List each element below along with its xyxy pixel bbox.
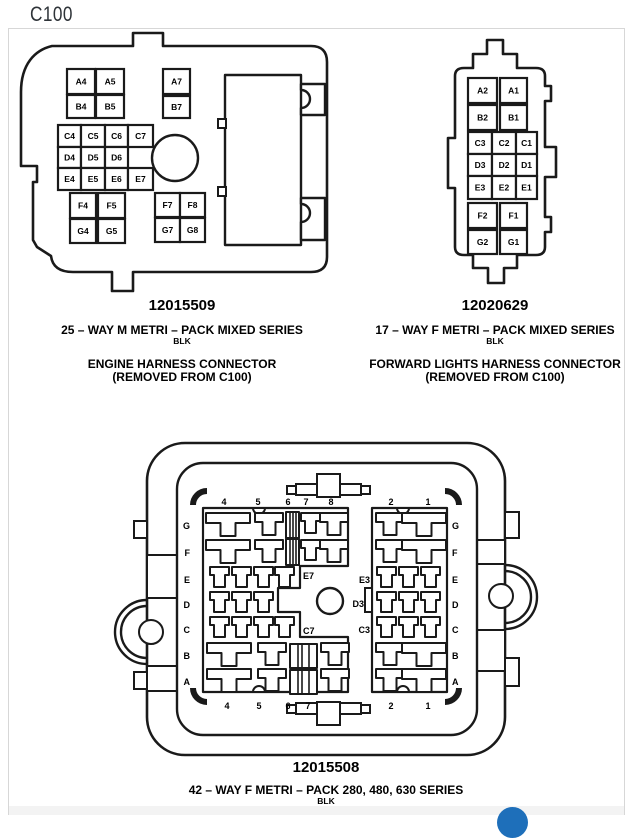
connector1-key-cavity bbox=[225, 75, 301, 245]
pin-label: E3 bbox=[475, 183, 486, 193]
pin-label: C7 bbox=[135, 131, 146, 141]
connector1-part-number: 12015509 bbox=[22, 298, 342, 313]
pin-label: G5 bbox=[106, 226, 118, 236]
pin-label: F8 bbox=[188, 200, 198, 210]
connector1-color-code: BLK bbox=[22, 337, 342, 346]
right-latch-rail-lower bbox=[477, 630, 505, 671]
left-side-tab-upper bbox=[134, 521, 147, 538]
grid-label-E3: E3 bbox=[359, 575, 370, 585]
grid-label-6: 6 bbox=[285, 701, 290, 711]
connector2-drawing: A2A1B2B1C3C2C1D3D2D1E3E2E1F2F1G2G1 bbox=[448, 40, 556, 283]
grid-label-D: D bbox=[184, 600, 191, 610]
pin-label: F1 bbox=[509, 211, 519, 221]
d3-index-tab bbox=[365, 588, 372, 612]
grid-label-D: D bbox=[452, 600, 459, 610]
grid-label-E: E bbox=[452, 575, 458, 585]
pin-label: B4 bbox=[76, 102, 87, 112]
grid-label-E7: E7 bbox=[303, 571, 314, 581]
grid-label-4: 4 bbox=[224, 701, 229, 711]
connector2-description: FORWARD LIGHTS HARNESS CONNECTOR (REMOVE… bbox=[360, 358, 630, 384]
pin-label: F7 bbox=[163, 200, 173, 210]
grid-label-B: B bbox=[184, 651, 191, 661]
pin-label: C3 bbox=[475, 138, 486, 148]
pin-label: E7 bbox=[135, 174, 146, 184]
grid-label-C: C bbox=[452, 625, 459, 635]
grid-label-A: A bbox=[452, 677, 459, 687]
blank-plug bbox=[290, 670, 317, 694]
pin-label: E4 bbox=[64, 174, 75, 184]
pin-label: C5 bbox=[88, 131, 99, 141]
connector1-drawing: A4A5A7B4B5B7C4C5C6C7D4D5D6E4E5E6E7F4F5F7… bbox=[21, 33, 327, 291]
grid-label-F: F bbox=[185, 548, 191, 558]
pin-label: D2 bbox=[499, 160, 510, 170]
connector2-caption: 12020629 17 – WAY F METRI – PACK MIXED S… bbox=[360, 298, 630, 384]
grid-label-8: 8 bbox=[328, 497, 333, 507]
pin-label: C2 bbox=[499, 138, 510, 148]
pin-label: E6 bbox=[111, 174, 122, 184]
connector2-description-line2: (REMOVED FROM C100) bbox=[360, 371, 630, 384]
pin-label: G1 bbox=[508, 237, 520, 247]
pin-label: D6 bbox=[111, 153, 122, 163]
connector3-caption: 12015508 42 – WAY F METRI – PACK 280, 48… bbox=[176, 760, 476, 806]
pin-label: A7 bbox=[171, 77, 182, 87]
connector1-description: ENGINE HARNESS CONNECTOR (REMOVED FROM C… bbox=[22, 358, 342, 384]
grid-label-1: 1 bbox=[425, 701, 430, 711]
grid-label-2: 2 bbox=[388, 701, 393, 711]
pin-label: D1 bbox=[521, 160, 532, 170]
grid-label-C: C bbox=[184, 625, 191, 635]
grid-label-B: B bbox=[452, 651, 459, 661]
page: { "page": { "title": "C100" }, "connecto… bbox=[0, 0, 633, 815]
pin-label: C4 bbox=[64, 131, 75, 141]
right-block-bottom-notch bbox=[397, 686, 409, 692]
pin-label: C1 bbox=[521, 138, 532, 148]
left-side-tab-lower bbox=[134, 672, 147, 689]
connector1-round-cavity bbox=[152, 135, 198, 181]
pin-label: B2 bbox=[477, 113, 488, 123]
grid-label-7: 7 bbox=[303, 497, 308, 507]
pin-label: A5 bbox=[105, 77, 116, 87]
grid-label-G: G bbox=[452, 521, 459, 531]
connector2-color-code: BLK bbox=[360, 337, 630, 346]
pin-label: A4 bbox=[76, 77, 87, 87]
pin-label: F2 bbox=[478, 211, 488, 221]
connector3-color-code: BLK bbox=[176, 797, 476, 806]
left-latch-rail-upper bbox=[147, 555, 177, 598]
pin-label: D4 bbox=[64, 153, 75, 163]
grid-label-C7: C7 bbox=[303, 626, 315, 636]
connector3-part-number: 12015508 bbox=[176, 760, 476, 775]
grid-label-D3: D3 bbox=[352, 599, 364, 609]
pin-label: C6 bbox=[111, 131, 122, 141]
pin-label: B1 bbox=[508, 113, 519, 123]
connector3-drawing: GFEDCBAGFEDCBA4567821456721E7C7E3D3C3 bbox=[115, 443, 537, 755]
chat-bubble-button[interactable] bbox=[497, 807, 528, 838]
grid-label-5: 5 bbox=[256, 701, 261, 711]
blank-plug bbox=[290, 644, 317, 668]
cavity-jog-top bbox=[218, 119, 226, 128]
connector-diagram: A4A5A7B4B5B7C4C5C6C7D4D5D6E4E5E6E7F4F5F7… bbox=[0, 0, 633, 815]
pin-label: B7 bbox=[171, 102, 182, 112]
connector3-round-cavity bbox=[317, 588, 343, 614]
pin-label: D3 bbox=[475, 160, 486, 170]
grid-label-C3: C3 bbox=[358, 625, 370, 635]
right-side-tab-lower bbox=[505, 658, 519, 686]
connector1-description-line2: (REMOVED FROM C100) bbox=[22, 371, 342, 384]
grid-label-1: 1 bbox=[425, 497, 430, 507]
right-side-tab-upper bbox=[505, 512, 519, 538]
pin-label: D5 bbox=[88, 153, 99, 163]
right-latch-rail-upper bbox=[477, 540, 505, 564]
grid-label-6: 6 bbox=[285, 497, 290, 507]
cavity-jog-bottom bbox=[218, 187, 226, 196]
connector2-pins: A2A1B2B1C3C2C1D3D2D1E3E2E1F2F1G2G1 bbox=[468, 78, 537, 254]
connector1-series: 25 – WAY M METRI – PACK MIXED SERIES bbox=[22, 324, 342, 336]
grid-label-A: A bbox=[184, 677, 191, 687]
pin-label: E1 bbox=[521, 183, 532, 193]
grid-label-G: G bbox=[183, 521, 190, 531]
pin-label: E2 bbox=[499, 183, 510, 193]
left-latch-rail-lower bbox=[147, 666, 177, 691]
left-ear-hole bbox=[139, 620, 163, 644]
grid-label-5: 5 bbox=[255, 497, 260, 507]
connector2-series: 17 – WAY F METRI – PACK MIXED SERIES bbox=[360, 324, 630, 336]
pin-label: G2 bbox=[477, 237, 489, 247]
connector3-series: 42 – WAY F METRI – PACK 280, 480, 630 SE… bbox=[176, 784, 476, 796]
pin-label: A1 bbox=[508, 86, 519, 96]
right-ear-hole bbox=[489, 584, 513, 608]
left-block-bottom-notch bbox=[253, 686, 265, 692]
pin-label: F5 bbox=[107, 201, 117, 211]
pin-label: A2 bbox=[477, 86, 488, 96]
pin-label: F4 bbox=[78, 201, 88, 211]
pin-label: B5 bbox=[105, 102, 116, 112]
grid-label-E: E bbox=[184, 575, 190, 585]
grid-label-2: 2 bbox=[388, 497, 393, 507]
grid-label-4: 4 bbox=[221, 497, 226, 507]
pin-label: E5 bbox=[88, 174, 99, 184]
pin-label: G8 bbox=[187, 225, 199, 235]
connector2-part-number: 12020629 bbox=[360, 298, 630, 313]
grid-label-F: F bbox=[452, 548, 458, 558]
pin-label: G7 bbox=[162, 225, 174, 235]
grid-label-7: 7 bbox=[305, 701, 310, 711]
connector1-caption: 12015509 25 – WAY M METRI – PACK MIXED S… bbox=[22, 298, 342, 384]
pin-label: G4 bbox=[77, 226, 89, 236]
